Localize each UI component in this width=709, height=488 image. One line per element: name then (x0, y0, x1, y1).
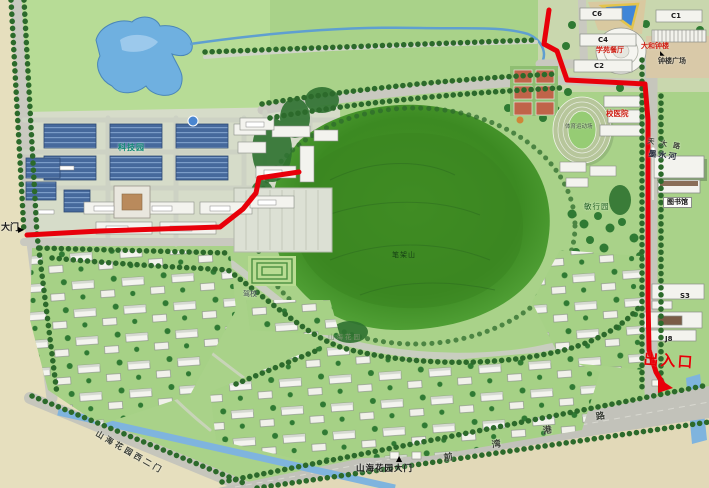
label-c6: C6 (592, 11, 602, 18)
label-driving-school: 驾校 (243, 291, 257, 298)
label-stadium: 体育运动场 (565, 125, 593, 131)
label-shanhai-garden: 山海花园 (328, 334, 362, 341)
label-minxing-garden: 敏行园 (584, 203, 610, 211)
label-qwg-4: 路 (595, 412, 605, 422)
label-tech-park: 科技园 (118, 144, 145, 152)
campus-map: 大门 ▶ 科技园 C6 C1 C4 C2 学苑餐厅 大和钟楼 ◣ 钟楼广场 校医… (0, 0, 709, 488)
label-qwg-1: 前 (443, 453, 453, 463)
main-gate-marker-icon: ▲ (396, 455, 402, 463)
map-labels: 大门 ▶ 科技园 C6 C1 C4 C2 学苑餐厅 大和钟楼 ◣ 钟楼广场 校医… (0, 0, 709, 488)
label-c2: C2 (594, 63, 604, 70)
label-west-gate2: 山海花园西二门 (94, 430, 165, 475)
label-qwg-3: 港 (542, 426, 552, 436)
label-hospital: 校医院 (606, 110, 629, 118)
label-c4: C4 (598, 37, 608, 44)
label-s3: S3 (680, 293, 690, 300)
gate-marker-icon: ▶ (18, 226, 24, 234)
label-c1: C1 (671, 13, 681, 20)
label-j8: J8 (665, 336, 672, 343)
label-qwg-2: 湾 (491, 440, 501, 450)
label-bijia-hill: 笔架山 (392, 252, 416, 259)
label-library: 图书馆 (663, 197, 692, 208)
label-exit-gate: 出入口 (643, 352, 695, 371)
label-bell-tower: 大和钟楼 (641, 43, 669, 50)
label-bell-plaza: 钟楼广场 (658, 58, 686, 65)
label-west-gate: 大门 (1, 224, 19, 233)
label-moshui-river: 墨水河 (648, 150, 679, 162)
label-main-gate: 山海花园大门 (356, 465, 413, 474)
label-canteen: 学苑餐厅 (596, 47, 624, 54)
